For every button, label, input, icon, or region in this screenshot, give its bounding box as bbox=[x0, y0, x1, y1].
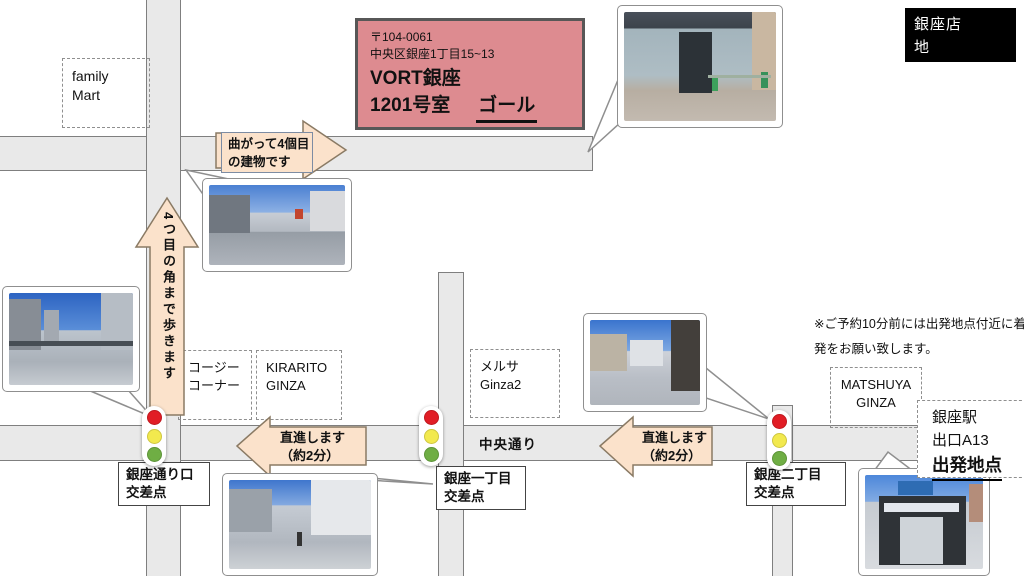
goal-address-box: 〒104-0061 中央区銀座1丁目15~13 VORT銀座 1201号室ゴール bbox=[355, 18, 585, 130]
signal-red-icon bbox=[424, 410, 439, 425]
direction-turn-label: 曲がって4個目 の建物です bbox=[221, 132, 313, 173]
photo-fragment bbox=[671, 320, 700, 391]
photo-fragment bbox=[297, 532, 302, 546]
photo-street-ahead bbox=[229, 480, 371, 569]
landmark-cozy-corner: コージー コーナー bbox=[178, 350, 252, 420]
start-label: 出発地点 bbox=[932, 452, 1002, 481]
photo-street-view bbox=[209, 185, 345, 265]
intersection-ginza-1chome: 銀座一丁目 交差点 bbox=[436, 466, 526, 510]
photo-fragment bbox=[712, 77, 718, 91]
photo-fragment bbox=[884, 503, 960, 511]
signal-red-icon bbox=[772, 414, 787, 429]
photo-goal-entrance bbox=[617, 5, 783, 128]
traffic-light-icon-1 bbox=[142, 406, 166, 466]
reservation-note: ※ご予約10分前には出発地点付近に着き、出 発をお願い致します。 bbox=[814, 312, 1024, 366]
direction-straight-label-2: 直進します （約2分） bbox=[642, 429, 707, 464]
signal-red-icon bbox=[147, 410, 162, 425]
photo-fragment bbox=[9, 341, 133, 347]
goal-address: 中央区銀座1丁目15~13 bbox=[370, 46, 570, 63]
signal-green-icon bbox=[147, 447, 162, 462]
start-point-box: 銀座駅 出口A13 出発地点 bbox=[917, 400, 1024, 478]
photo-fragment bbox=[630, 340, 663, 366]
landmark-kirarito-ginza: KIRARITO GINZA bbox=[256, 350, 342, 420]
photo-intersection-view bbox=[9, 293, 133, 385]
goal-label: ゴール bbox=[476, 94, 537, 123]
photo-fragment bbox=[295, 209, 303, 219]
photo-fragment bbox=[900, 517, 942, 564]
photo-subway-exit bbox=[858, 468, 990, 576]
goal-building-name: VORT銀座 bbox=[370, 67, 570, 92]
goal-room-line: 1201号室ゴール bbox=[370, 94, 570, 123]
start-exit: 出口A13 bbox=[932, 430, 1024, 453]
photo-fragment bbox=[969, 484, 983, 522]
photo-left-intersection bbox=[2, 286, 140, 392]
signal-yellow-icon bbox=[147, 429, 162, 444]
signal-yellow-icon bbox=[772, 433, 787, 448]
direction-walk-label: 4つ目の角まで歩きます bbox=[159, 212, 178, 412]
photo-fragment bbox=[708, 75, 772, 78]
map-title-box: 銀座店 地 図 No.06 bbox=[905, 8, 1016, 62]
traffic-light-icon-2 bbox=[419, 406, 443, 466]
goal-postal-code: 〒104-0061 bbox=[370, 29, 570, 46]
street-label-chuo-dori: 中央通り bbox=[479, 433, 537, 453]
photo-fragment bbox=[679, 32, 712, 93]
photo-fragment bbox=[310, 191, 345, 231]
photo-ginza-street bbox=[590, 320, 700, 405]
landmark-matsuya-ginza: MATSHUYA GINZA bbox=[830, 367, 922, 428]
traffic-light-icon-3 bbox=[767, 410, 791, 470]
photo-fragment bbox=[311, 480, 371, 535]
photo-mid-street bbox=[583, 313, 707, 412]
intersection-ginza-dori-guchi: 銀座通り口 交差点 bbox=[118, 462, 210, 506]
start-station: 銀座駅 bbox=[932, 407, 1024, 430]
intersection-ginza-2chome: 銀座二丁目 交差点 bbox=[746, 462, 846, 506]
photo-fragment bbox=[229, 489, 272, 532]
landmark-family-mart: family Mart bbox=[62, 58, 150, 128]
callout-tail-mid-photo bbox=[706, 368, 769, 419]
photo-fragment bbox=[590, 334, 627, 371]
direction-straight-label-1: 直進します （約2分） bbox=[280, 429, 345, 464]
photo-building-entrance bbox=[624, 12, 776, 121]
signal-green-icon bbox=[772, 451, 787, 466]
landmark-melsa-ginza2: メルサ Ginza2 bbox=[470, 349, 560, 418]
photo-turn-street bbox=[202, 178, 352, 272]
photo-station-exit-a13 bbox=[865, 475, 983, 569]
signal-green-icon bbox=[424, 447, 439, 462]
signal-yellow-icon bbox=[424, 429, 439, 444]
photo-fragment bbox=[898, 481, 933, 495]
photo-fragment bbox=[209, 195, 250, 233]
access-map: 中央通り family Mart コージー コーナー KIRARITO GINZ… bbox=[0, 0, 1024, 576]
goal-room: 1201号室 bbox=[370, 95, 450, 116]
photo-bottom-street bbox=[222, 473, 378, 576]
